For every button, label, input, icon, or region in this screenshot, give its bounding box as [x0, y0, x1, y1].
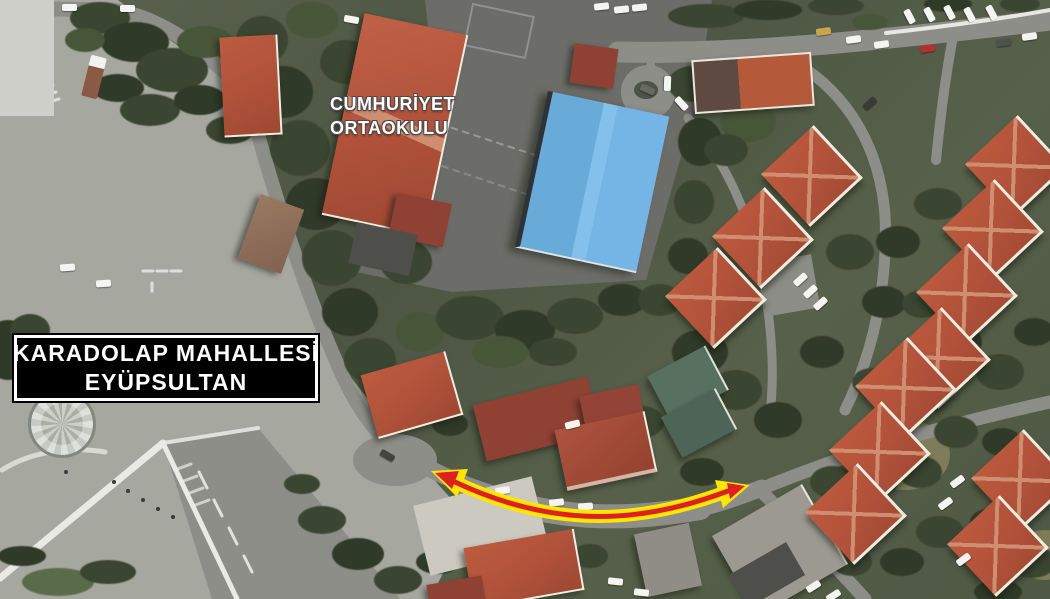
district-name: EYÜPSULTAN — [85, 368, 248, 397]
region-name: KARADOLAP MAHALLESİ — [13, 339, 319, 368]
satellite-map-screenshot: CUMHURİYET ORTAOKULU KARADOLAP MAHALLESİ… — [0, 0, 1050, 599]
school-name-line1: CUMHURİYET — [330, 92, 455, 116]
school-name-line2: ORTAOKULU — [330, 116, 455, 140]
route-arrow-annotation — [0, 0, 1050, 599]
region-label-box: KARADOLAP MAHALLESİ EYÜPSULTAN — [14, 335, 318, 401]
school-name-label: CUMHURİYET ORTAOKULU — [330, 92, 455, 140]
